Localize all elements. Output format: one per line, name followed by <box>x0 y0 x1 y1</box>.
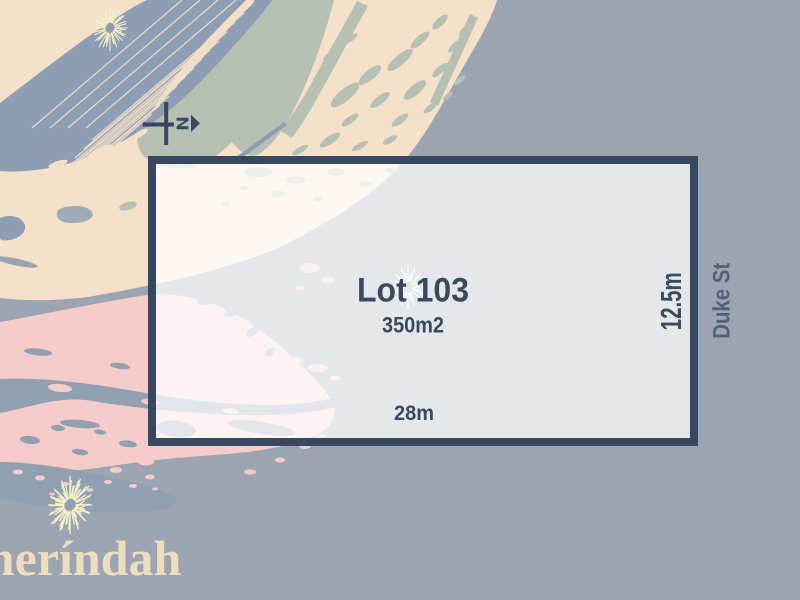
svg-text:12.5m: 12.5m <box>656 272 688 330</box>
svg-text:350m2: 350m2 <box>382 313 444 338</box>
svg-text:28m: 28m <box>394 402 434 425</box>
svg-text:meríndah: meríndah <box>0 530 182 586</box>
svg-text:Lot 103: Lot 103 <box>357 272 469 310</box>
svg-text:Duke St: Duke St <box>709 263 736 339</box>
